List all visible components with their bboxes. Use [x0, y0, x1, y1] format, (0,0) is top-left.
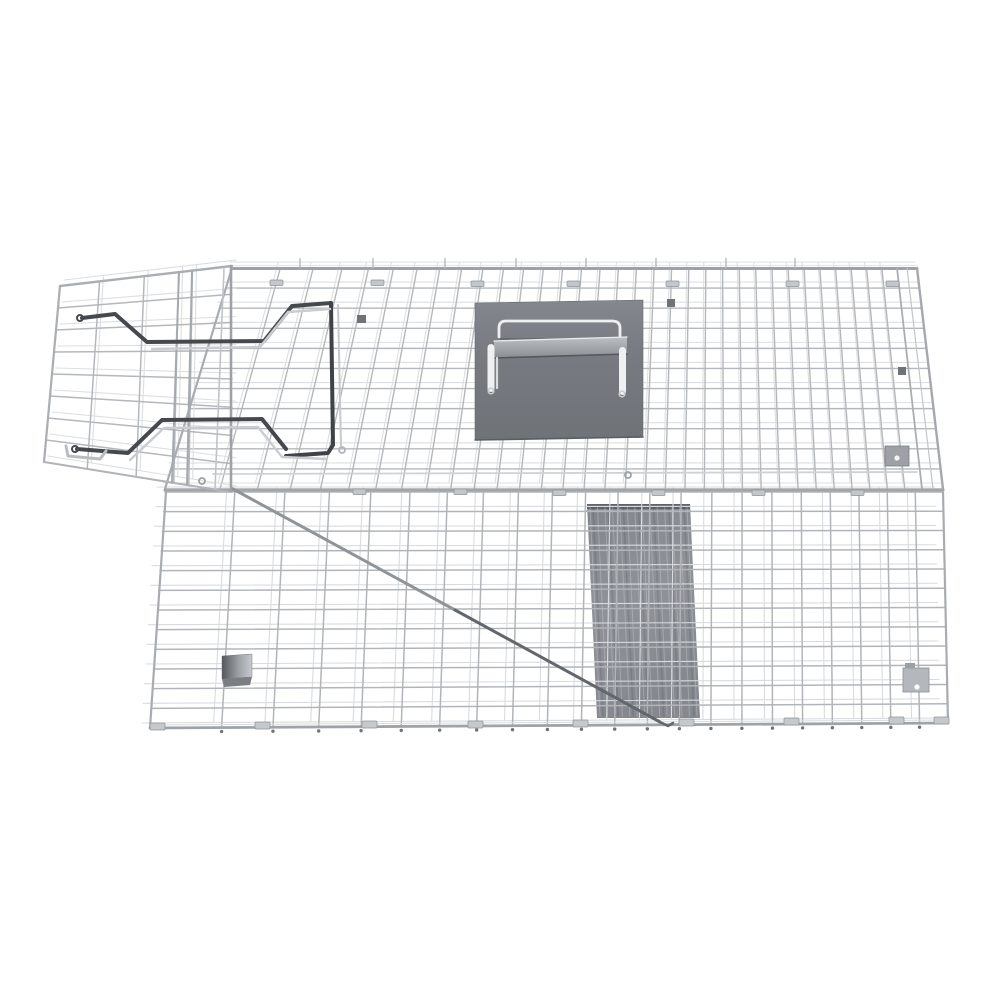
wire-clip [454, 489, 467, 495]
wire-mesh-body [44, 259, 949, 734]
wire-clip [652, 490, 665, 496]
wire-clip [851, 490, 864, 496]
wire-clip [270, 280, 283, 286]
wire-clip [679, 719, 694, 726]
wire-clip [255, 722, 270, 729]
page: { "meta": { "alt": "Silver galvanized wi… [0, 0, 1000, 1000]
wire-clip [886, 281, 899, 287]
wire-clip [567, 281, 580, 287]
wire-clip [934, 717, 949, 724]
wire-clip [468, 721, 483, 728]
door-lock-bar [286, 303, 333, 456]
trap-cage-illustration [0, 0, 1000, 1000]
front-mesh [142, 487, 948, 733]
wire-clip [362, 721, 377, 728]
wire-clip [573, 720, 588, 727]
wire-clip [471, 281, 484, 287]
trigger-rod [233, 489, 455, 610]
product-photo [0, 0, 1000, 1000]
wire-clip [786, 281, 799, 287]
bait-pedal-block [222, 654, 252, 679]
wire-clip [150, 723, 165, 730]
wire-clip [371, 280, 384, 286]
wire-clip [666, 281, 679, 287]
wire-clip [353, 489, 366, 495]
wire-clip [553, 490, 566, 496]
wire-clip [784, 718, 799, 725]
wire-clip [752, 490, 765, 496]
wire-clip [889, 717, 904, 724]
